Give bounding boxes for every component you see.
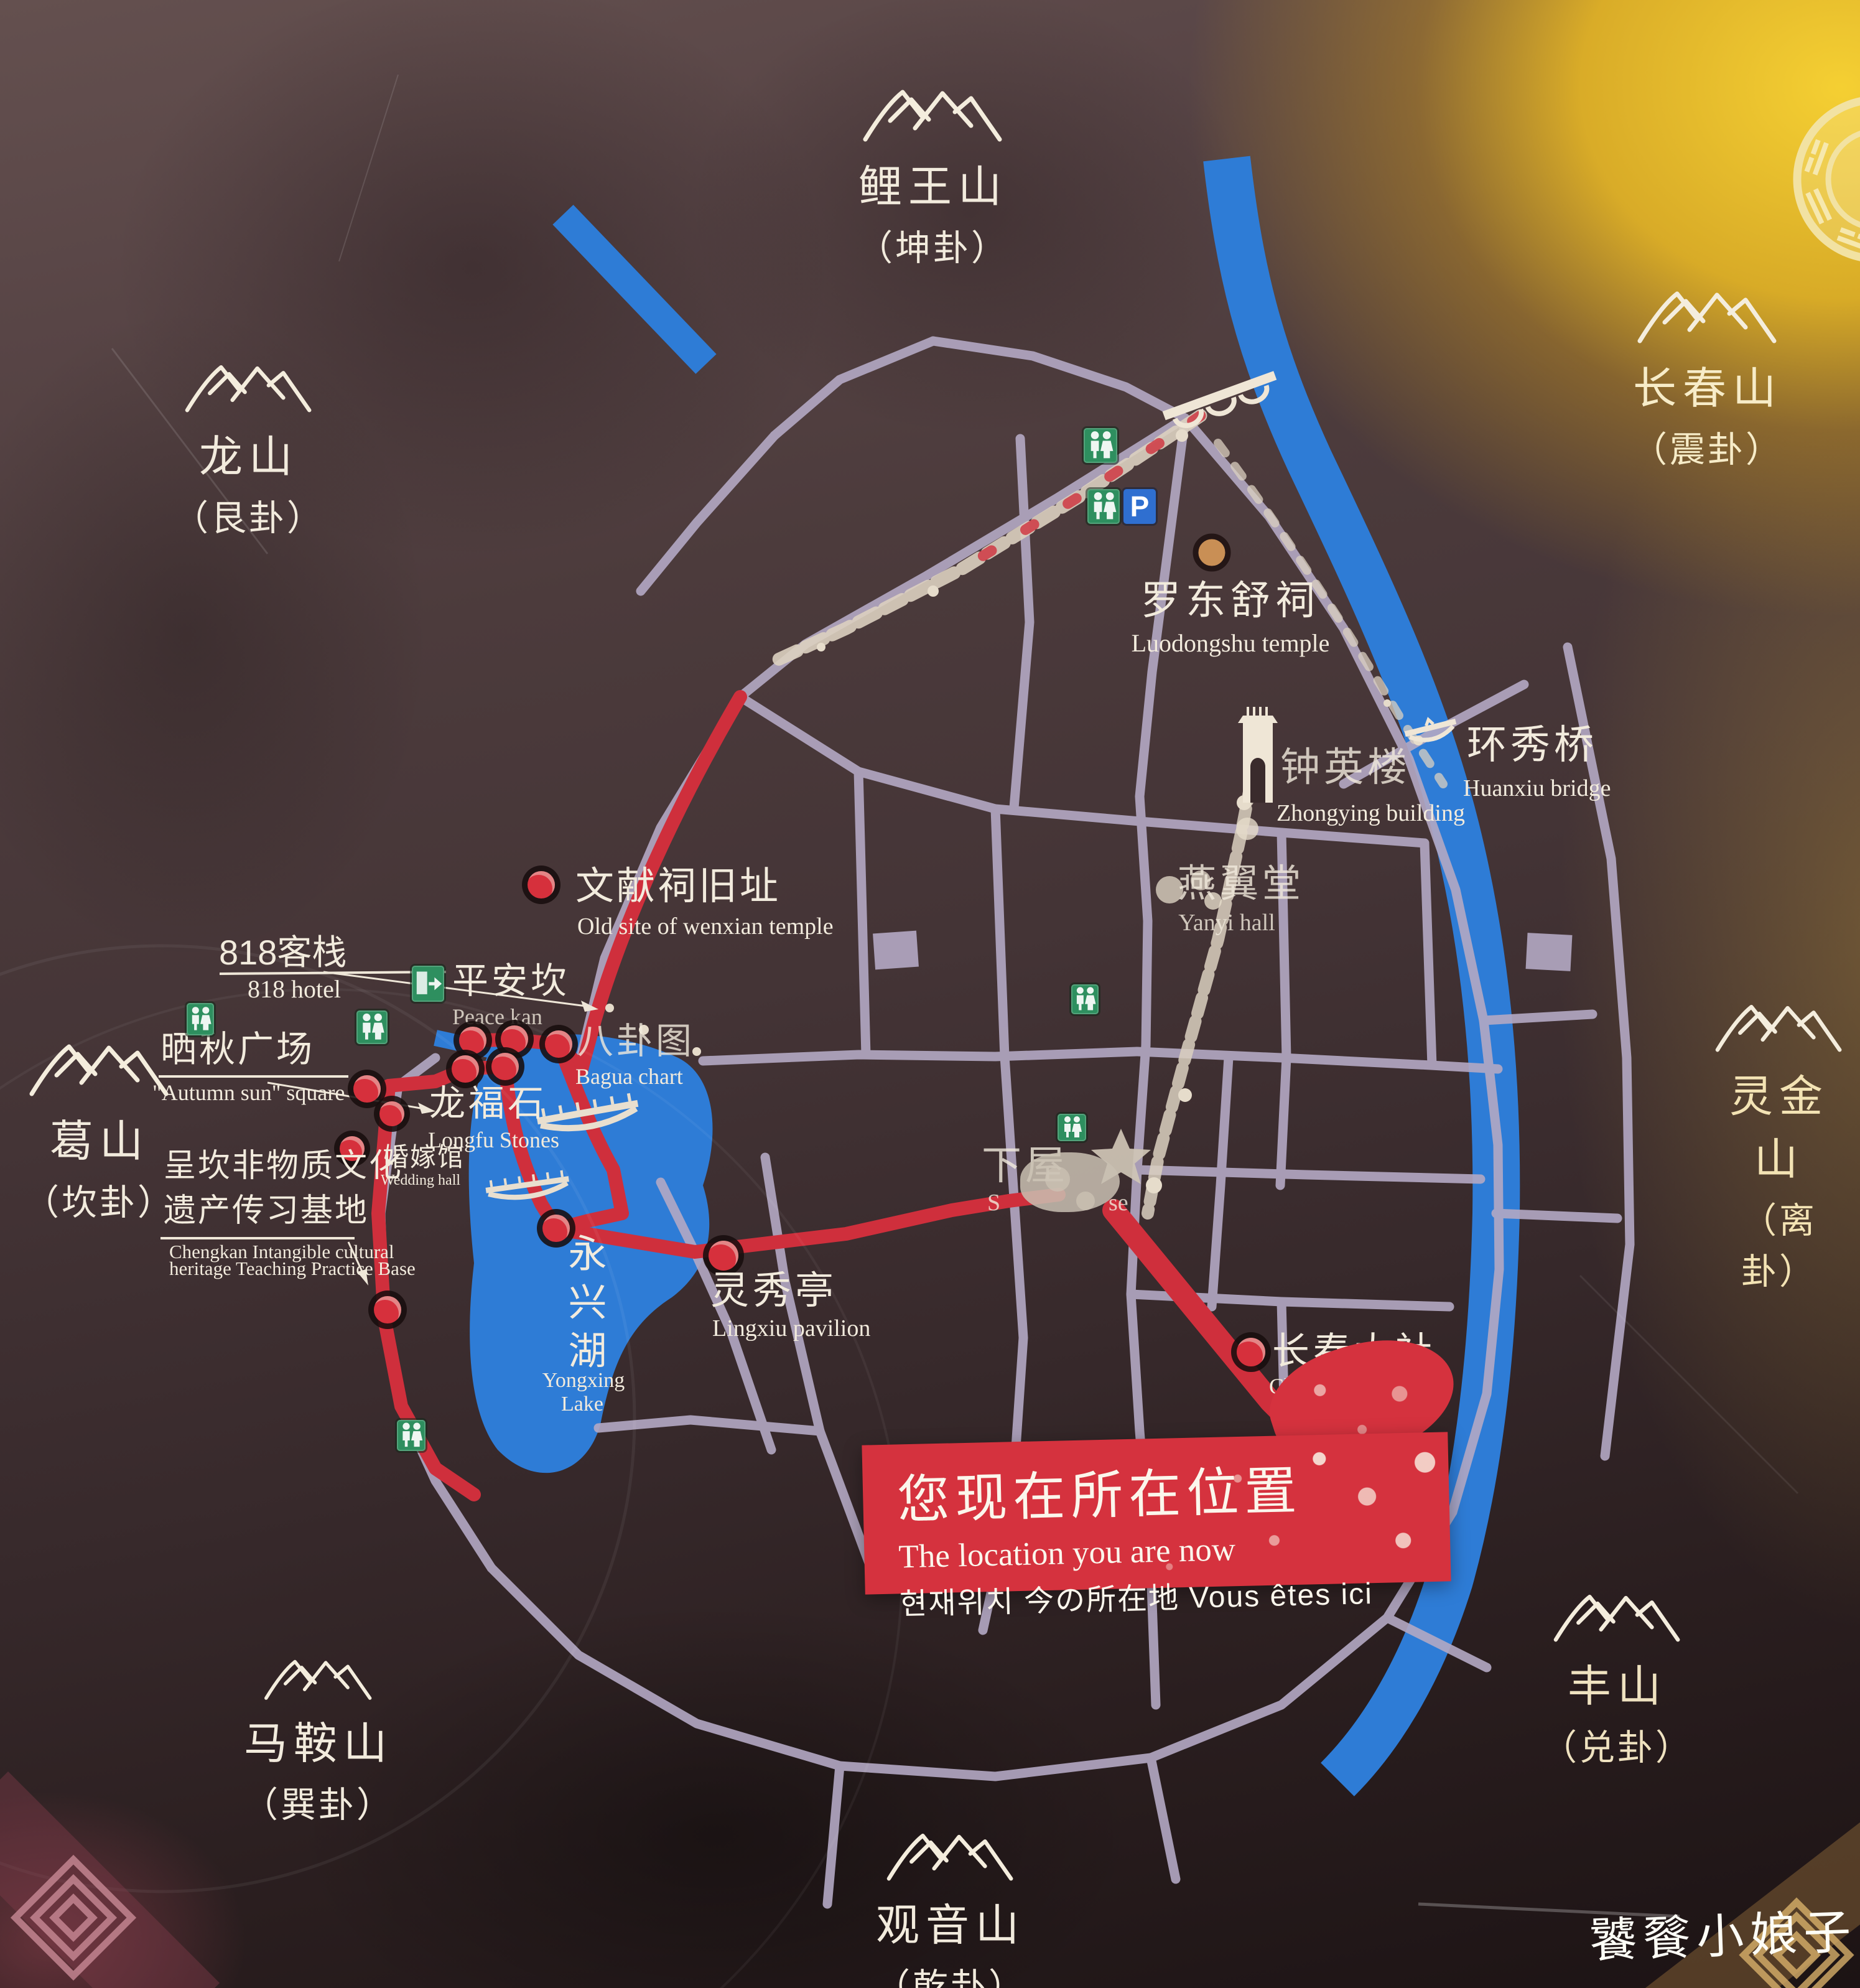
mountain-liwangshan: 鲤王山 （坤卦） [857,80,1009,271]
mountain-trigram: （离卦） [1714,1192,1844,1294]
mountain-icon [1636,281,1779,350]
poi-wenxian-zh: 文献祠旧址 [575,865,781,908]
poi-lingxiu-zh: 灵秀亭 [710,1269,837,1312]
poi-jidi-zh2: 遗产传习基地 [164,1193,369,1229]
poi-bagua-zh: 八卦图 [577,1022,695,1062]
parking-icon: P [1123,489,1156,524]
poi-yongxing-zh: 永兴湖 [562,1233,605,1379]
poi-wenxian-en: Old site of wenxian temple [577,913,834,940]
watermark-signature: 饕餮小娘子 [1588,1893,1858,1971]
poi-818hotel-en: 818 hotel [248,976,341,1004]
mountain-trigram: （艮卦） [173,490,325,541]
poi-yanyi-zh: 燕翼堂 [1178,862,1304,905]
poi-lingxiu-en: Lingxiu pavilion [712,1315,870,1342]
poi-huanxiu-en: Huanxiu bridge [1463,775,1611,802]
poi-pingankan-en: Peace kan [452,1004,542,1029]
mountain-name: 观音山 [875,1890,1026,1953]
zhongying-tower-icon [1238,707,1278,803]
poi-luodongshu-zh: 罗东舒祠 [1141,579,1320,623]
mountain-trigram: （震卦） [1632,421,1783,472]
mountain-geshan: 葛山 （坎卦） [24,1034,175,1225]
mountain-icon [1552,1585,1683,1648]
mountain-maanshan: 马鞍山 （巽卦） [243,1652,394,1827]
poi-marker [353,1075,381,1103]
poi-luodongshu-en: Luodongshu temple [1132,630,1330,658]
stream [563,215,706,364]
mountain-name: 龙山 [173,422,325,485]
poi-longfu-zh: 龙福石 [429,1084,547,1124]
poi-shaiqiu-en: "Autumn sun" square [152,1080,345,1105]
you-are-here-zh: 您现在所在位置 [896,1446,1431,1533]
mountain-longshan: 龙山 （艮卦） [173,356,325,541]
corner-meander-bottom-left [0,1804,187,1988]
poi-zhongying-zh: 钟英楼 [1280,745,1411,790]
poi-shaiqiu-zh: 晒秋广场 [160,1030,315,1070]
mountain-name: 鲤王山 [857,152,1009,215]
poi-marker [709,1241,738,1271]
mountain-guanyinshan: 观音山 （乾卦） [875,1824,1026,1988]
poi-marker [545,1030,572,1058]
toilet-icon [1084,428,1117,463]
mountain-icon [885,1824,1016,1887]
toilet-icon [187,1003,214,1035]
mountain-lingjinshan: 灵金山 （离卦） [1714,996,1844,1294]
poi-pingankan-zh: 平安坎 [452,961,570,1002]
poi-marker [379,1101,404,1126]
poi-jidi-zh1: 呈坎非物质文化 [164,1148,403,1184]
poi-818hotel-zh: 818客栈 [219,933,346,973]
poi-marker [1237,1338,1265,1366]
toilet-icon [397,1420,425,1451]
mountain-trigram: （坎卦） [24,1174,175,1225]
poi-marker [491,1053,519,1080]
you-are-here-en: The location you are now [898,1526,1432,1575]
poi-huanxiu-zh: 环秀桥 [1467,723,1597,768]
you-are-here-box: 您现在所在位置 The location you are now 현재위치 今の… [862,1432,1451,1594]
poi-marker [452,1055,479,1083]
poi-marker [501,1025,528,1053]
mountain-trigram: （坤卦） [857,220,1009,271]
mountain-changchunshan: 长春山 （震卦） [1632,281,1783,472]
poi-jidi-en2: heritage Teaching Practice Base [169,1258,416,1280]
toilet-icon [1071,984,1099,1014]
poi-marker [528,871,555,898]
mountain-name: 葛山 [24,1106,175,1169]
mountain-name: 丰山 [1541,1651,1693,1714]
bagua-compass-icon [1768,92,1860,285]
mountain-icon [862,80,1005,148]
poi-bagua-en: Bagua chart [575,1064,683,1089]
luodongshu-marker [1196,536,1228,569]
mountain-name: 长春山 [1632,353,1783,416]
mountain-icon [263,1652,374,1705]
mountain-icon [28,1034,171,1103]
mountain-trigram: （兑卦） [1541,1719,1693,1770]
poi-yongxing-en1: Yongxing [542,1369,625,1393]
toilet-icon [1058,1114,1086,1141]
mountain-icon [184,356,314,418]
poi-xiawu-en-fragment: S [987,1190,1000,1216]
mountain-fengshan: 丰山 （兑卦） [1541,1585,1693,1770]
poi-marker [459,1027,486,1054]
evacuation-point-icon [412,966,444,1002]
mountain-name: 灵金山 [1714,1062,1844,1187]
poi-yongxing-en2: Lake [561,1393,603,1416]
toilet-icon [356,1010,388,1044]
map-sign-photo: 鲤王山 （坤卦） 长春山 （震卦） 龙山 （艮卦） 葛山 （坎卦） 灵金山 （离… [0,0,1860,1988]
poi-marker [374,1296,401,1323]
mountain-name: 马鞍山 [243,1709,394,1771]
poi-yanyi-en: Yanyi hall [1178,910,1275,936]
poi-zhongying-en: Zhongying building [1276,800,1465,827]
mountain-icon [1714,996,1844,1058]
mountain-trigram: （巽卦） [243,1776,394,1827]
mountain-trigram: （乾卦） [875,1958,1026,1988]
poi-xiawu-en-fragment: se [1109,1190,1128,1216]
toilet-icon [1087,489,1120,524]
